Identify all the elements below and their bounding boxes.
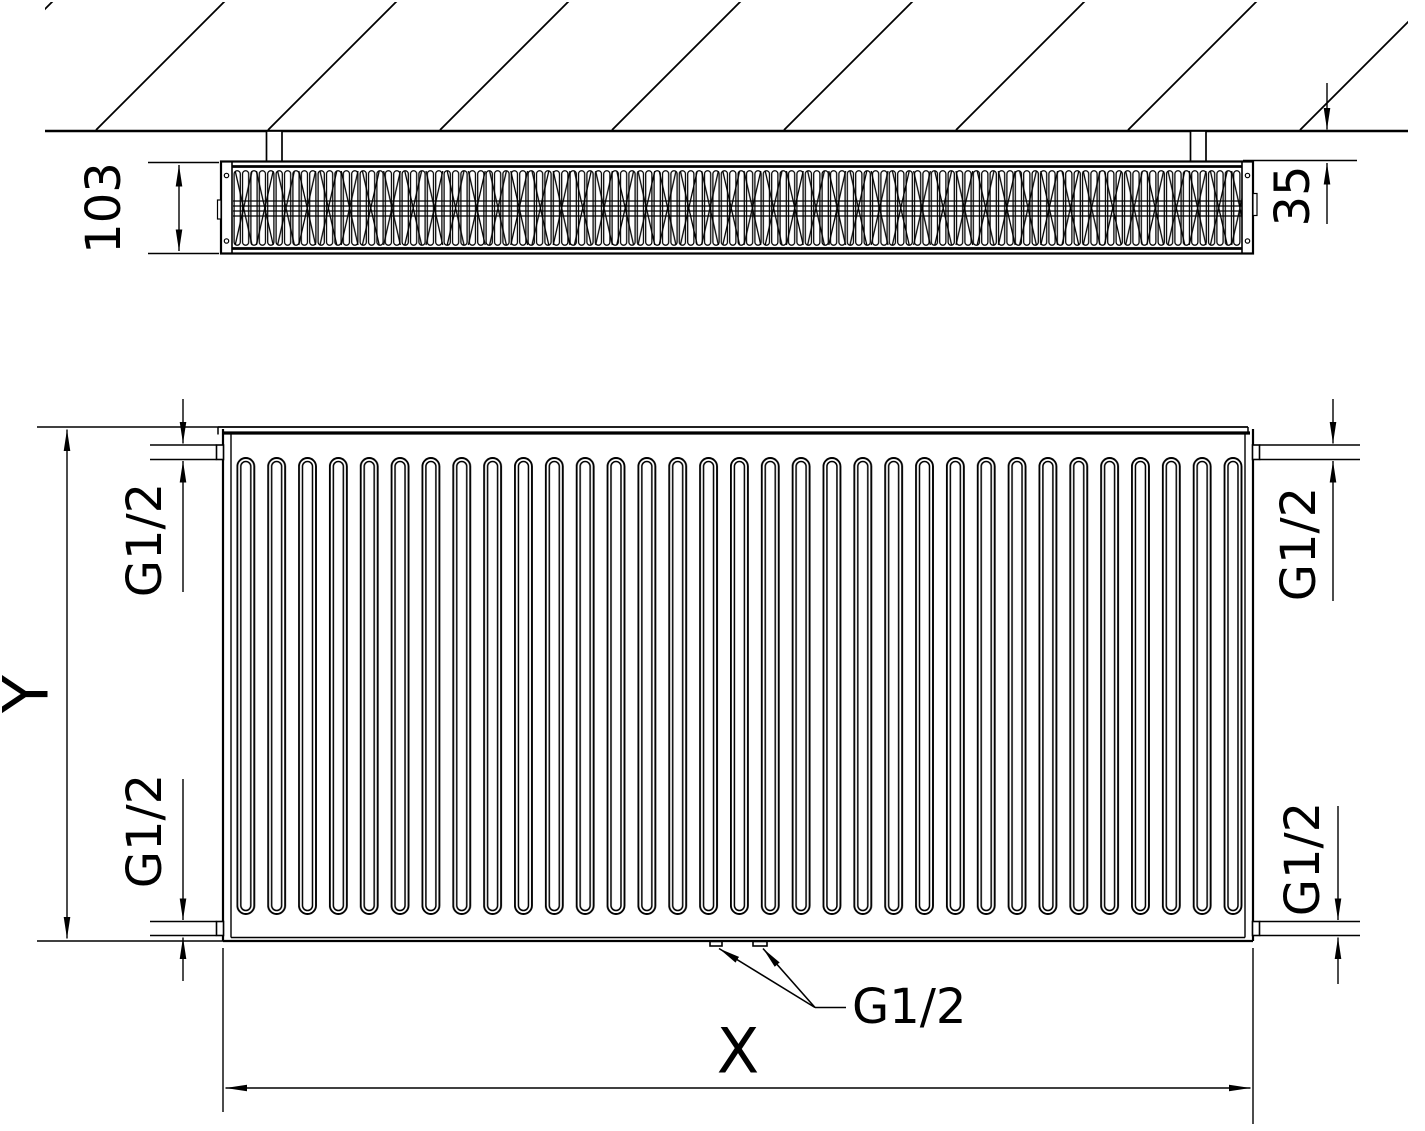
side-plug-left <box>218 200 222 219</box>
dim-thread-top-left: G1/2 <box>117 399 217 597</box>
length-label: X <box>717 1015 759 1088</box>
mounting-bracket-left <box>267 131 283 163</box>
connection-nozzle-bottom-right <box>1253 922 1260 936</box>
convector-fins <box>233 170 1242 246</box>
top-view: 103 35 <box>45 2 1408 254</box>
dim-thread-bottom-right: G1/2 <box>1260 802 1361 984</box>
height-label: Y <box>0 675 63 714</box>
radiator-technical-drawing: 103 35 <box>0 0 1425 1131</box>
dim-depth: 103 <box>76 162 219 254</box>
connection-nozzle-bottom-left <box>217 922 224 936</box>
dim-height: Y <box>0 427 223 941</box>
depth-dimension-label: 103 <box>76 162 132 254</box>
connection-nozzle-top-left <box>217 445 224 460</box>
connection-stub-bottom-center-1 <box>710 942 722 947</box>
radiator-section-body <box>218 162 1258 254</box>
wall-hatch <box>45 2 1408 130</box>
dim-length: X <box>223 948 1253 1124</box>
connection-stub-bottom-center-2 <box>753 942 767 947</box>
front-view: Y X G1/2 G1/2 <box>0 399 1360 1124</box>
thread-label-bottom-right: G1/2 <box>1275 802 1331 916</box>
thread-label-bottom-left: G1/2 <box>117 774 173 888</box>
dim-thread-top-right: G1/2 <box>1260 399 1361 601</box>
front-panel-channels <box>236 457 1243 915</box>
thread-label-top-left: G1/2 <box>117 483 173 597</box>
thread-label-bottom-center: G1/2 <box>852 979 966 1035</box>
dim-thread-bottom-left: G1/2 <box>117 774 217 981</box>
thread-label-top-right: G1/2 <box>1271 487 1327 601</box>
wall-clearance-label: 35 <box>1265 165 1321 226</box>
connection-nozzle-top-right <box>1253 445 1260 460</box>
side-plug-right <box>1253 194 1257 216</box>
mounting-bracket-right <box>1191 131 1207 163</box>
radiator-front-body <box>218 427 1253 941</box>
